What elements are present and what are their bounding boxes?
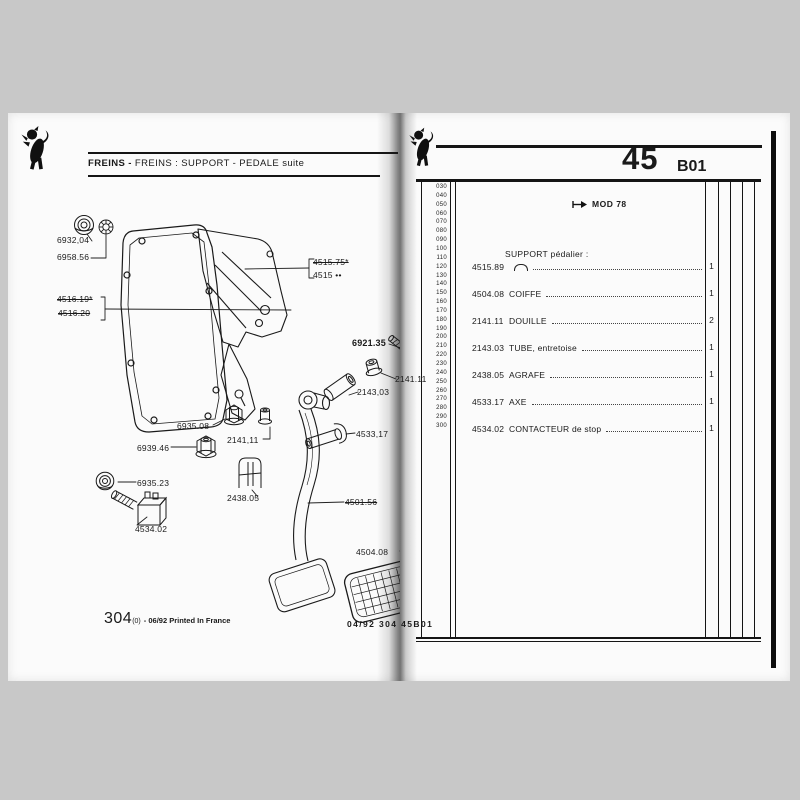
mod-arrow-icon — [572, 200, 588, 209]
margin-number: 250 — [424, 378, 447, 386]
dotted-leader — [550, 377, 702, 378]
book-spine-shadow — [377, 113, 417, 681]
part-label: 6932,04 — [57, 235, 89, 245]
part-description: CONTACTEUR de stop — [509, 424, 601, 434]
section-code: B01 — [677, 158, 706, 176]
part-ref: 2141.11 — [472, 316, 506, 326]
part-label: 6935.23 — [137, 478, 169, 488]
part-label: 4515 •• — [313, 270, 342, 280]
table-rule-col-2 — [718, 179, 719, 637]
parts-group-header: SUPPORT pédalier : — [505, 249, 589, 259]
part-description: COIFFE — [509, 289, 541, 299]
margin-number: 100 — [424, 245, 447, 253]
diagram-label-layer: 04/92 304 45B01 6932,046958.564516.19*45… — [8, 113, 400, 681]
part-ref: 4504.08 — [472, 289, 506, 299]
margin-number: 060 — [424, 210, 447, 218]
parts-row: 2141.11DOUILLE — [472, 315, 704, 326]
part-ref: 2438.05 — [472, 370, 506, 380]
part-ref: 2143.03 — [472, 343, 506, 353]
mod-note: MOD 78 — [572, 199, 627, 209]
part-label: 6958.56 — [57, 252, 89, 262]
table-rule-margin-right — [450, 179, 451, 637]
parts-row: 2438.05AGRAFE — [472, 369, 704, 380]
part-label: 4516.19* — [57, 294, 93, 304]
parts-row: 4504.08COIFFE — [472, 288, 704, 299]
part-label: 4515.75* — [313, 257, 349, 267]
parts-row: 4534.02CONTACTEUR de stop — [472, 423, 704, 434]
part-description: AXE — [509, 397, 527, 407]
table-rule-col-5 — [754, 179, 755, 637]
margin-number: 030 — [424, 183, 447, 191]
margin-number: 110 — [424, 254, 447, 262]
mod-note-text: MOD 78 — [592, 199, 627, 209]
part-qty: 2 — [704, 315, 719, 325]
margin-number: 230 — [424, 360, 447, 368]
part-label: 4501.56 — [345, 497, 377, 507]
right-page: 45 B01 MOD 78 03004005006007008009010011… — [400, 113, 790, 681]
parts-row: 4533.17AXE — [472, 396, 704, 407]
table-border-top — [416, 179, 761, 182]
catalog-spread: FREINS - FREINS : SUPPORT - PEDALE suite — [0, 0, 800, 800]
margin-number: 050 — [424, 201, 447, 209]
margin-number: 140 — [424, 280, 447, 288]
margin-number: 150 — [424, 289, 447, 297]
dotted-leader — [546, 296, 702, 297]
margin-number: 090 — [424, 236, 447, 244]
part-label: 2141,11 — [227, 435, 259, 445]
parts-row: 2143.03TUBE, entretoise — [472, 342, 704, 353]
margin-number: 210 — [424, 342, 447, 350]
part-label: 4534.02 — [135, 524, 167, 534]
margin-number: 070 — [424, 218, 447, 226]
margin-number: 220 — [424, 351, 447, 359]
part-label: 2438.05 — [227, 493, 259, 503]
table-border-bottom-2 — [416, 641, 761, 642]
part-qty: 1 — [704, 261, 719, 271]
dotted-leader — [552, 323, 702, 324]
part-qty: 1 — [704, 369, 719, 379]
left-page: FREINS - FREINS : SUPPORT - PEDALE suite — [8, 113, 400, 681]
margin-number: 260 — [424, 387, 447, 395]
dotted-leader — [533, 269, 702, 270]
repeat-arc-icon — [514, 264, 528, 271]
part-label: 6939.46 — [137, 443, 169, 453]
dotted-leader — [606, 431, 702, 432]
margin-number: 130 — [424, 272, 447, 280]
table-rule-qty-left — [705, 179, 706, 637]
table-border-bottom — [416, 637, 761, 639]
part-qty: 1 — [704, 423, 719, 433]
part-description: DOUILLE — [509, 316, 547, 326]
margin-number: 120 — [424, 263, 447, 271]
section-rule — [436, 145, 762, 148]
margin-number: 200 — [424, 333, 447, 341]
dotted-leader — [532, 404, 702, 405]
section-number: 45 — [622, 141, 658, 177]
table-rule-col-4 — [742, 179, 743, 637]
part-ref: 4534.02 — [472, 424, 506, 434]
part-qty: 1 — [704, 288, 719, 298]
part-description: TUBE, entretoise — [509, 343, 577, 353]
part-ref: 4515.89 — [472, 262, 506, 272]
part-qty: 1 — [704, 396, 719, 406]
table-rule-col-3 — [730, 179, 731, 637]
margin-number: 160 — [424, 298, 447, 306]
margin-number: 190 — [424, 325, 447, 333]
margin-number: 080 — [424, 227, 447, 235]
margin-number: 240 — [424, 369, 447, 377]
margin-number: 040 — [424, 192, 447, 200]
margin-number: 170 — [424, 307, 447, 315]
part-description: AGRAFE — [509, 370, 545, 380]
part-label: 6935.08 — [177, 421, 209, 431]
part-qty: 1 — [704, 342, 719, 352]
margin-number: 280 — [424, 404, 447, 412]
margin-number: 290 — [424, 413, 447, 421]
margin-number: 270 — [424, 395, 447, 403]
part-label: 4516.20 — [58, 308, 90, 318]
table-rule-margin-left — [421, 179, 422, 637]
margin-number: 300 — [424, 422, 447, 430]
parts-row: 4515.89 — [472, 261, 704, 272]
table-rule-content-left — [455, 179, 456, 637]
page-edge-bar — [771, 131, 776, 668]
part-ref: 4533.17 — [472, 397, 506, 407]
margin-number: 180 — [424, 316, 447, 324]
dotted-leader — [582, 350, 702, 351]
